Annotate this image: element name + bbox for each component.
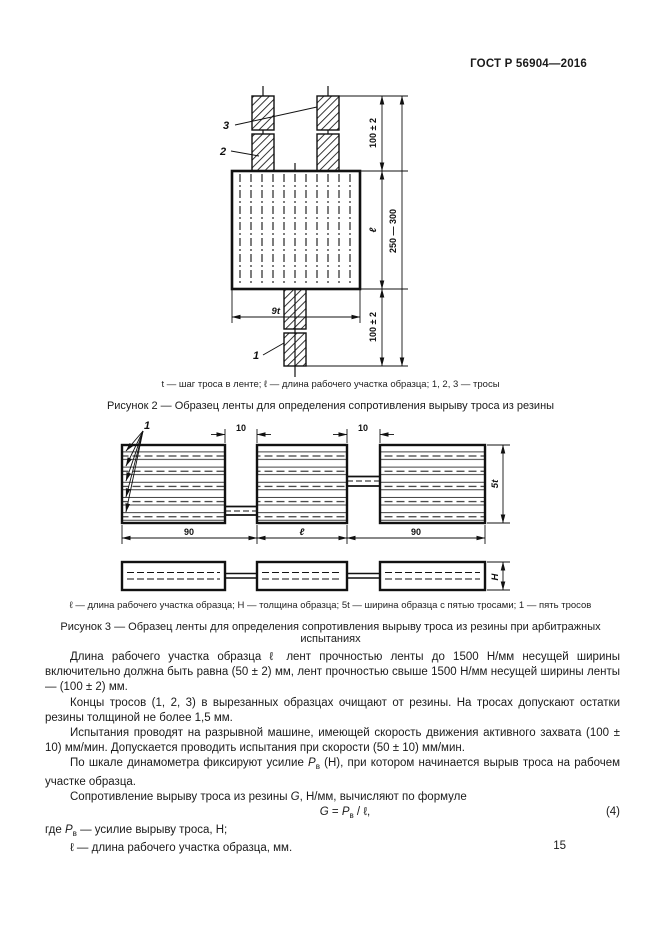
fig3-callout-1: 1: [144, 420, 150, 432]
fig3-side-blocks: [122, 562, 485, 590]
page-number: 15: [553, 840, 566, 852]
fig3-dim-neck-right-label: 10: [358, 423, 368, 433]
fig3-dim-neck-left-label: 10: [236, 423, 246, 433]
where-line-1: где Pв — усилие вырыву троса, Н;: [45, 823, 620, 841]
fig3-plan-blocks: [122, 445, 485, 523]
where-line-2: ℓ — длина рабочего участка образца, мм.: [45, 841, 620, 856]
formula-number: (4): [581, 805, 620, 820]
fig2-callout-2: 2: [219, 146, 226, 158]
where-clause: где Pв — усилие вырыву троса, Н; ℓ — дли…: [45, 823, 620, 856]
document-page: ГОСТ Р 56904—2016: [0, 0, 661, 935]
standard-number: ГОСТ Р 56904—2016: [470, 58, 587, 70]
fig2-dim-length-label: ℓ: [368, 227, 379, 232]
fig3-dim-left-label: 90: [184, 527, 194, 537]
fig2-dim-top-label: 100 ± 2: [368, 118, 378, 148]
fig2-callout-1: 1: [253, 350, 259, 362]
fig2-dim-bottom-label: 100 ± 2: [368, 312, 378, 342]
figure2-legend: t — шаг троса в ленте; ℓ — длина рабочег…: [30, 379, 631, 390]
fig3-dim-width-label: 5t: [490, 479, 501, 488]
fig2-callout-3: 3: [223, 120, 229, 132]
paragraph-3: Испытания проводят на разрывной машине, …: [45, 726, 620, 756]
fig3-dim-middle-label: ℓ: [300, 527, 305, 538]
figure3-title: Рисунок 3 — Образец ленты для определени…: [30, 621, 631, 645]
formula: G = Pв / ℓ, (4): [45, 805, 620, 823]
figure3-drawing: 10 10 90 ℓ 90 5t 1: [60, 418, 565, 600]
paragraph-5: Сопротивление вырыву троса из резины G, …: [45, 790, 620, 805]
fig3-dim-thickness-label: H: [490, 572, 501, 580]
formula-expression: G = Pв / ℓ,: [320, 806, 370, 818]
paragraph-1: Длина рабочего участка образца ℓ лент пр…: [45, 650, 620, 696]
figure2-drawing: 100 ± 2 ℓ 100 ± 2 250 — 300 9t 3 2 1: [170, 86, 440, 384]
figure3-legend: ℓ — длина рабочего участка образца; H — …: [30, 600, 631, 611]
body-text: Длина рабочего участка образца ℓ лент пр…: [45, 650, 620, 857]
figure2-title: Рисунок 2 — Образец ленты для определени…: [30, 400, 631, 412]
paragraph-2: Концы тросов (1, 2, 3) в вырезанных обра…: [45, 696, 620, 726]
fig3-dim-right-label: 90: [411, 527, 421, 537]
fig2-dim-overall-label: 250 — 300: [388, 209, 398, 253]
fig2-dim-width-label: 9t: [272, 306, 281, 317]
paragraph-4: По шкале динамометра фиксируют усилие Pв…: [45, 756, 620, 789]
